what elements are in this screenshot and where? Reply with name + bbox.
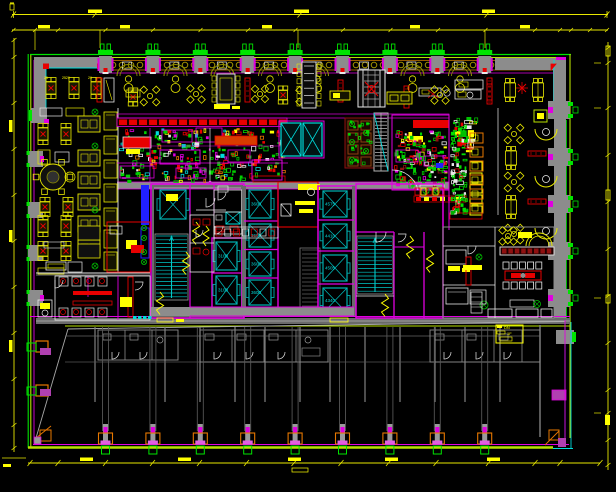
svg-text:3100: 3100: [218, 254, 229, 259]
svg-text:4575: 4575: [325, 202, 336, 207]
svg-text:1F: 1F: [507, 331, 512, 336]
svg-text:4410: 4410: [325, 234, 336, 239]
svg-text:3600: 3600: [251, 290, 262, 295]
svg-text:4505: 4505: [325, 266, 336, 271]
svg-text:4340: 4340: [325, 298, 336, 303]
svg-text:3600: 3600: [251, 262, 262, 267]
svg-text:DN: DN: [504, 325, 510, 330]
svg-text:3100: 3100: [218, 288, 229, 293]
svg-text:3600: 3600: [251, 202, 262, 207]
